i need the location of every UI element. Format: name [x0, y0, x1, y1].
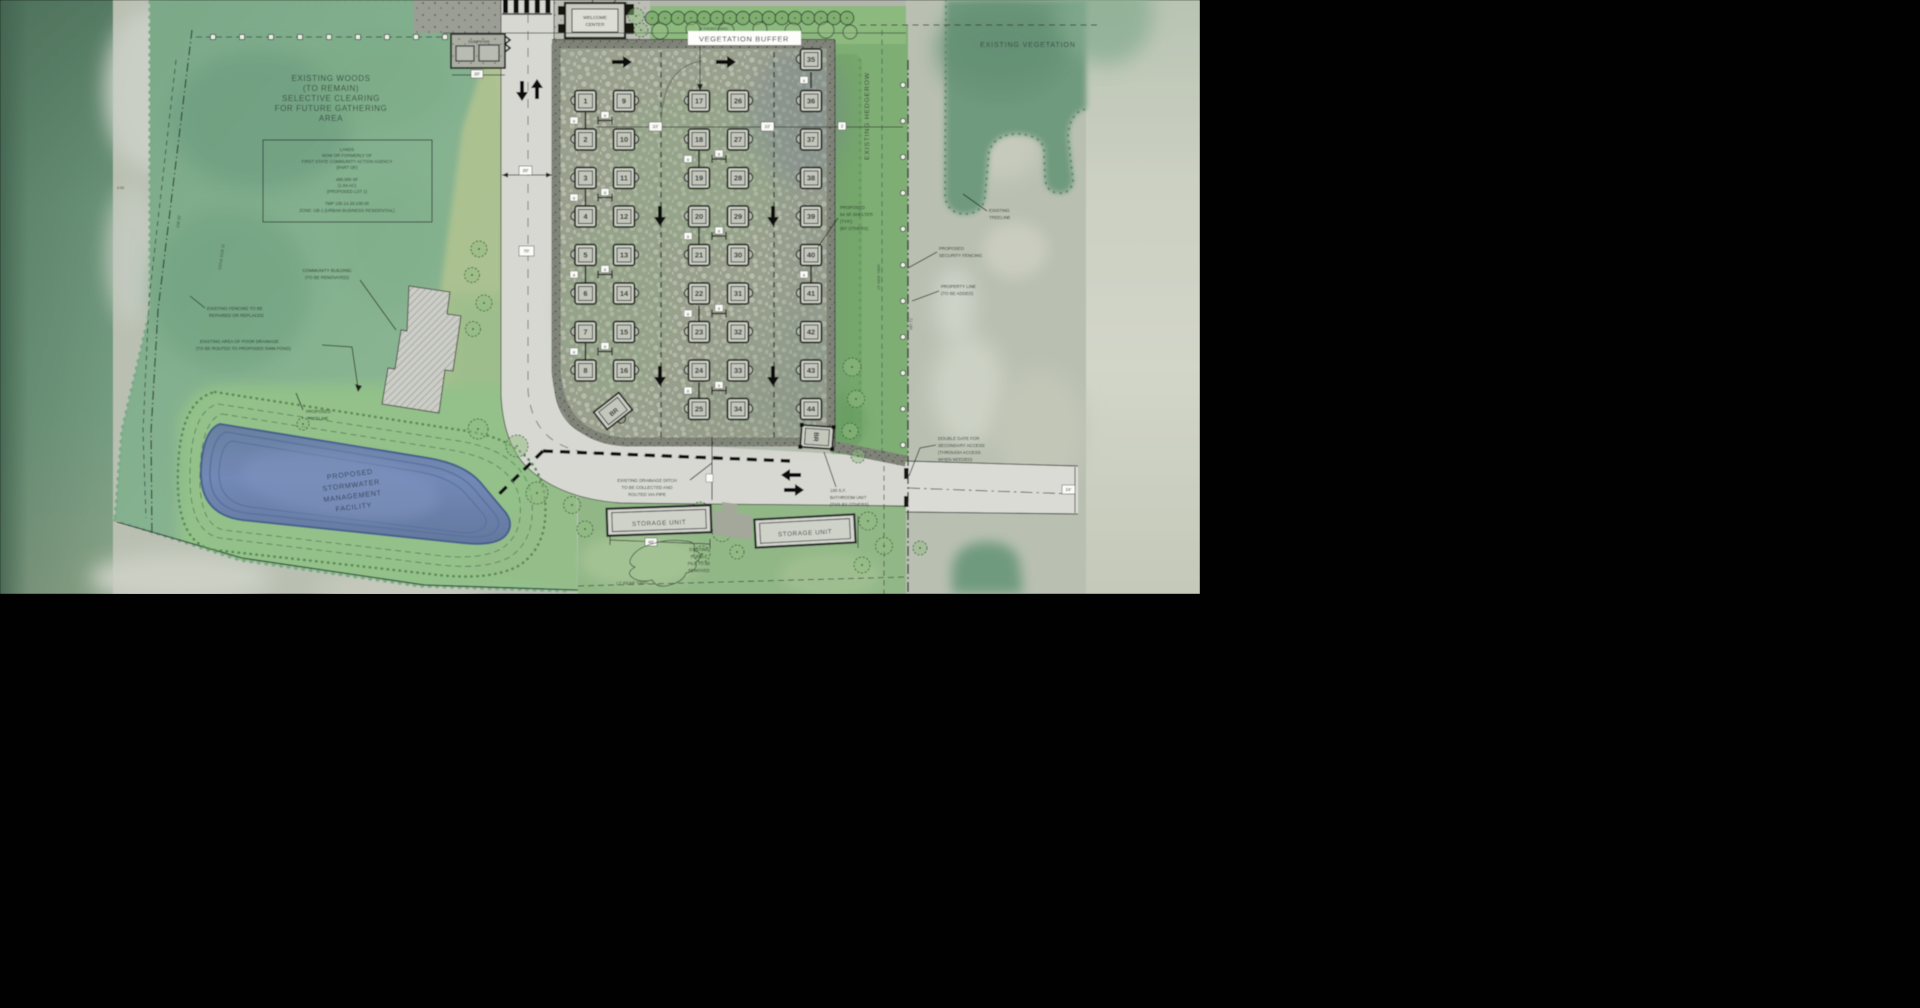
svg-text:(TO BE ROUTED TO PROPOSED SWM: (TO BE ROUTED TO PROPOSED SWM POND): [196, 346, 291, 351]
svg-text:25: 25: [695, 405, 703, 414]
svg-text:22': 22': [765, 124, 771, 129]
svg-text:37: 37: [807, 135, 815, 144]
svg-text:27: 27: [734, 135, 742, 144]
svg-text:EXISTING DRAINAGE DITCH: EXISTING DRAINAGE DITCH: [617, 478, 676, 483]
svg-text:CENTER: CENTER: [586, 22, 606, 27]
svg-text:DOUBLE GATE FOR: DOUBLE GATE FOR: [938, 436, 979, 441]
svg-text:18: 18: [695, 135, 703, 144]
svg-text:20': 20': [474, 72, 480, 77]
svg-text:24: 24: [695, 366, 704, 375]
svg-text:1: 1: [583, 97, 587, 106]
svg-text:100 S.F.: 100 S.F.: [830, 488, 846, 493]
svg-text:REMOVED: REMOVED: [688, 568, 709, 573]
svg-text:(PROPOSED LOT 1): (PROPOSED LOT 1): [327, 189, 368, 194]
svg-text:(TO BE RENOVATED): (TO BE RENOVATED): [305, 275, 349, 280]
svg-text:22: 22: [695, 289, 703, 298]
svg-text:PROPERTY LINE: PROPERTY LINE: [941, 284, 976, 289]
svg-text:(TO REMAIN): (TO REMAIN): [303, 84, 359, 93]
svg-text:AREA: AREA: [319, 114, 343, 123]
svg-text:2: 2: [583, 135, 587, 144]
svg-text:21: 21: [695, 251, 703, 260]
svg-text:TREELINE: TREELINE: [989, 215, 1011, 220]
svg-text:FOR FUTURE GATHERING: FOR FUTURE GATHERING: [275, 104, 388, 113]
svg-text:15' SIDE YARD: 15' SIDE YARD: [877, 264, 881, 290]
svg-text:6: 6: [583, 289, 587, 298]
svg-text:EXISTING WOODS: EXISTING WOODS: [291, 74, 370, 83]
svg-text:17: 17: [695, 97, 703, 106]
svg-text:(TO BE ADDED): (TO BE ADDED): [941, 291, 974, 296]
svg-text:VEGETATION BUFFER: VEGETATION BUFFER: [699, 35, 789, 44]
svg-text:14: 14: [620, 289, 629, 298]
svg-text:REPAIRED OR REPLACED: REPAIRED OR REPLACED: [209, 313, 264, 318]
svg-text:(TYP. BY OTHERS): (TYP. BY OTHERS): [830, 502, 869, 507]
svg-text:ZONE: UB-1 (URBAN BUSINESS RES: ZONE: UB-1 (URBAN BUSINESS RESIDENTIAL): [299, 208, 395, 213]
svg-text:22': 22': [653, 124, 659, 129]
svg-text:PROPOSED: PROPOSED: [939, 246, 964, 251]
svg-text:PILE TO BE: PILE TO BE: [688, 561, 711, 566]
svg-text:9: 9: [622, 97, 626, 106]
svg-text:480,000 SF: 480,000 SF: [336, 177, 359, 182]
svg-text:28: 28: [734, 174, 742, 183]
svg-text:EXISTING: EXISTING: [989, 208, 1010, 213]
svg-text:32: 32: [734, 328, 742, 337]
svg-text:NOW OR FORMERLY OF: NOW OR FORMERLY OF: [322, 153, 372, 158]
svg-text:SECONDARY ACCESS: SECONDARY ACCESS: [938, 443, 985, 448]
svg-text:PROPOSED: PROPOSED: [840, 205, 865, 210]
svg-text:BATHROOM UNIT: BATHROOM UNIT: [830, 495, 867, 500]
svg-text:WHEN NEEDED): WHEN NEEDED): [938, 457, 973, 462]
svg-text:24': 24': [1066, 487, 1072, 492]
svg-text:31: 31: [734, 289, 742, 298]
svg-text:36: 36: [807, 97, 815, 106]
svg-text:(1.84 AC): (1.84 AC): [338, 183, 357, 188]
svg-text:TREELINE: TREELINE: [307, 416, 329, 421]
svg-text:40: 40: [807, 251, 815, 260]
svg-text:20': 20': [523, 168, 529, 173]
svg-text:19: 19: [695, 174, 703, 183]
svg-text:EXISTING AREA OF POOR DRAINAGE: EXISTING AREA OF POOR DRAINAGE: [200, 339, 279, 344]
svg-text:2: 2: [841, 124, 844, 129]
svg-text:COMMUNITY BUILDING: COMMUNITY BUILDING: [303, 268, 353, 273]
svg-text:WELCOME: WELCOME: [583, 15, 607, 20]
svg-text:LANDS: LANDS: [340, 147, 354, 152]
svg-text:12: 12: [620, 212, 628, 221]
svg-text:8: 8: [583, 366, 587, 375]
svg-text:16: 16: [620, 366, 628, 375]
svg-text:4.93: 4.93: [117, 186, 124, 190]
svg-text:EXISTING VEGETATION: EXISTING VEGETATION: [980, 42, 1076, 49]
svg-text:26: 26: [734, 97, 742, 106]
svg-text:8' FRONT YARD: 8' FRONT YARD: [700, 27, 728, 31]
svg-text:5: 5: [583, 251, 587, 260]
svg-text:EXISTING FENCING TO BE: EXISTING FENCING TO BE: [207, 306, 263, 311]
svg-text:34: 34: [734, 405, 743, 414]
svg-text:SECURITY FENCING: SECURITY FENCING: [939, 253, 983, 258]
svg-text:(TYP.): (TYP.): [840, 219, 853, 224]
svg-text:70': 70': [524, 249, 530, 254]
svg-text:30: 30: [734, 251, 742, 260]
svg-text:7: 7: [583, 328, 587, 337]
svg-text:BR: BR: [812, 432, 820, 442]
svg-text:(PART OF): (PART OF): [336, 165, 358, 170]
svg-text:15: 15: [620, 328, 628, 337]
svg-text:29: 29: [734, 212, 742, 221]
svg-text:PROPOSED: PROPOSED: [306, 409, 331, 414]
svg-text:287.71': 287.71': [909, 317, 913, 330]
svg-text:23: 23: [695, 328, 703, 337]
svg-text:13: 13: [620, 251, 628, 260]
svg-text:20: 20: [695, 212, 703, 221]
svg-text:33: 33: [734, 366, 742, 375]
svg-text:(BY OTHERS): (BY OTHERS): [840, 226, 869, 231]
svg-text:38: 38: [807, 174, 815, 183]
svg-text:64 SF SHELTER: 64 SF SHELTER: [840, 212, 873, 217]
svg-text:SELECTIVE CLEARING: SELECTIVE CLEARING: [282, 94, 380, 103]
svg-text:(THROUGH ACCESS: (THROUGH ACCESS: [938, 450, 981, 455]
svg-text:DUMPSTER: DUMPSTER: [468, 40, 490, 44]
svg-text:11: 11: [620, 174, 628, 183]
svg-text:FIRST STATE COMMUNITY ACTION A: FIRST STATE COMMUNITY ACTION AGENCY: [302, 159, 393, 164]
svg-text:EXISTING: EXISTING: [689, 547, 709, 552]
svg-text:3: 3: [583, 174, 587, 183]
svg-text:44: 44: [807, 405, 816, 414]
svg-text:ROUTED VIA PIPE: ROUTED VIA PIPE: [628, 492, 666, 497]
svg-text:EXISTING HEDGEROW: EXISTING HEDGEROW: [864, 72, 871, 160]
svg-text:RUBBLE: RUBBLE: [691, 554, 708, 559]
svg-text:42: 42: [807, 328, 815, 337]
svg-text:35: 35: [807, 55, 815, 64]
svg-text:41: 41: [807, 289, 815, 298]
svg-text:10: 10: [620, 135, 628, 144]
svg-text:39: 39: [807, 212, 815, 221]
svg-text:TO BE COLLECTED AND: TO BE COLLECTED AND: [622, 485, 673, 490]
svg-text:TMP 135-14.20-230.00: TMP 135-14.20-230.00: [325, 201, 370, 206]
svg-text:43: 43: [807, 366, 815, 375]
